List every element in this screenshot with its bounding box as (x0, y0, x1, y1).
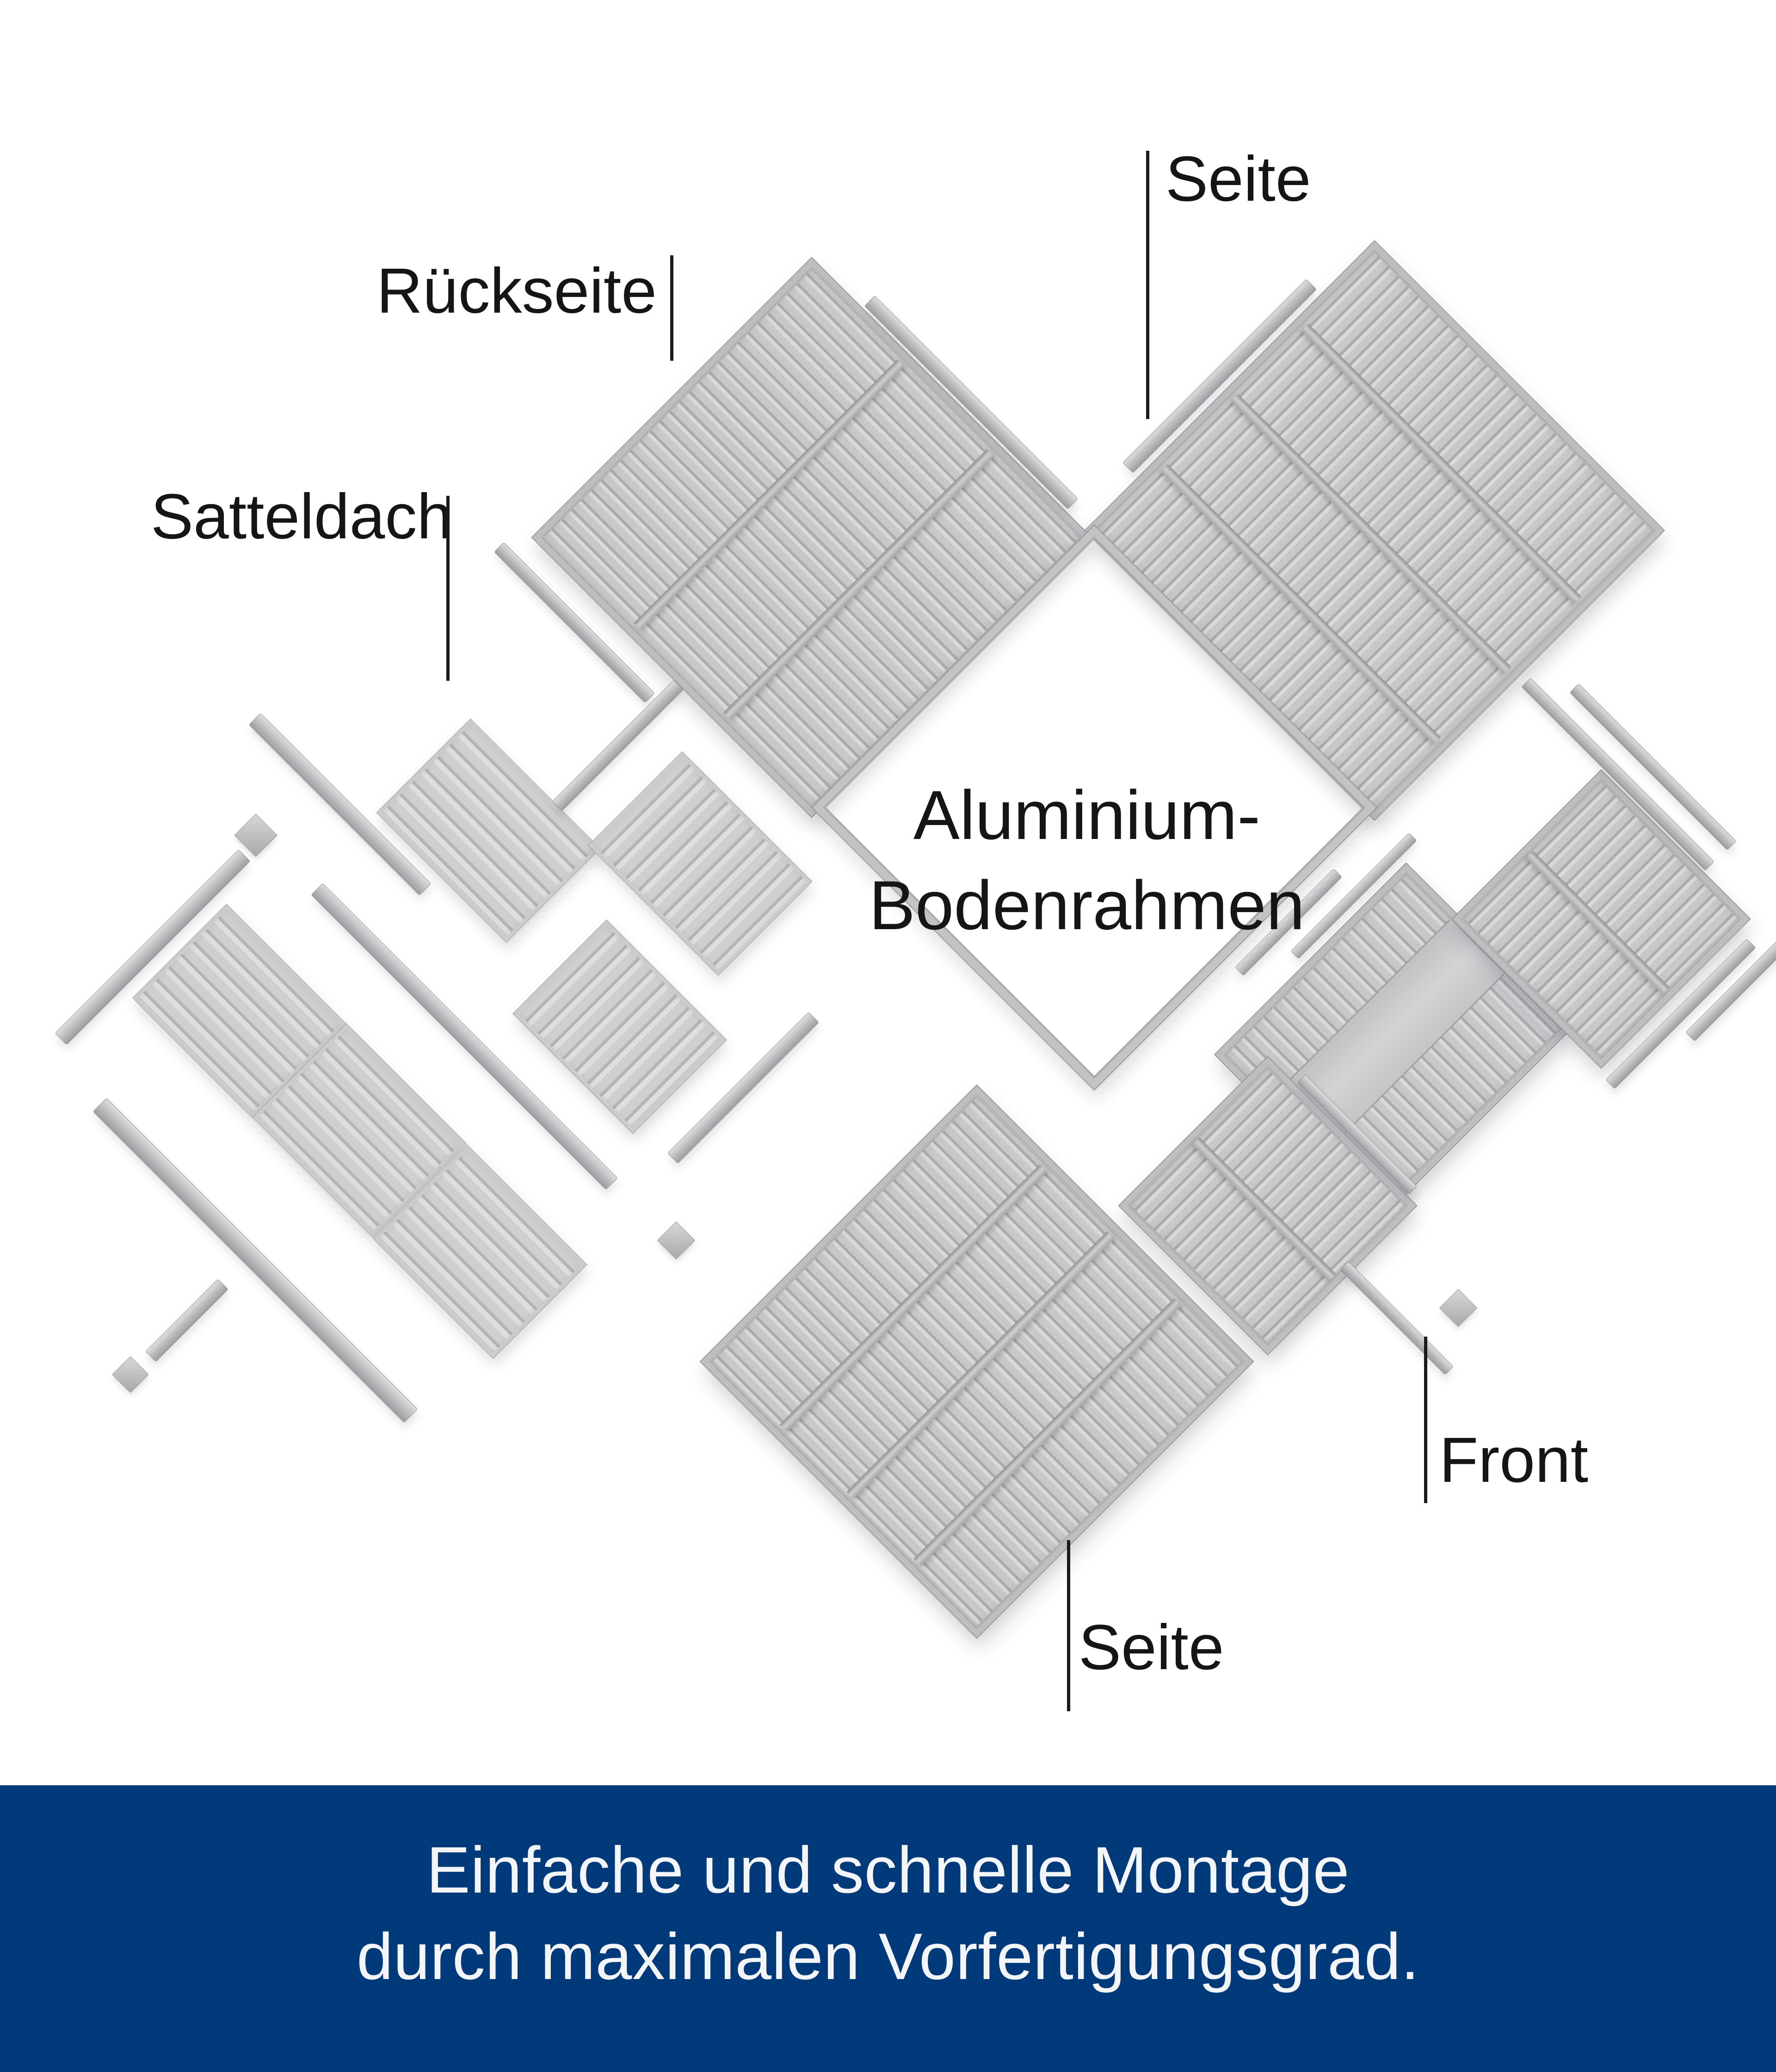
label-rueckseite: Rückseite (351, 259, 657, 323)
label-seite-bottom: Seite (1079, 1616, 1224, 1679)
label-bodenrahmen-line2: Bodenrahmen (786, 860, 1387, 950)
corner-cap-1 (235, 814, 277, 857)
callout-line-seite-bottom (1067, 1540, 1070, 1711)
support-bar (1301, 324, 1581, 604)
support-bar (914, 1299, 1181, 1566)
corner-cap-4 (1440, 1289, 1476, 1326)
product-diagram: Rückseite Seite Satteldach Aluminium- Bo… (0, 0, 1776, 2072)
diagram-stage (0, 0, 1776, 2072)
support-bar (634, 360, 905, 630)
support-bar (1231, 394, 1511, 674)
support-bar (780, 1165, 1047, 1432)
callout-line-satteldach (446, 496, 450, 681)
front-bottom-strip (1340, 1262, 1453, 1374)
label-bodenrahmen: Aluminium- Bodenrahmen (786, 770, 1387, 950)
roof-panel-6 (513, 920, 726, 1133)
callout-line-seite-top (1146, 151, 1149, 419)
support-bar (1192, 1138, 1336, 1282)
label-seite-top: Seite (1165, 147, 1311, 211)
support-bar (1526, 851, 1670, 995)
callout-line-front (1424, 1337, 1427, 1503)
callout-line-rueckseite (670, 255, 673, 361)
corner-cap-2 (113, 1357, 148, 1392)
corner-cap-3 (658, 1222, 694, 1258)
roof-panel-1 (377, 719, 600, 942)
label-front: Front (1439, 1428, 1588, 1492)
banner: Einfache und schnelle Montage durch maxi… (0, 1785, 1776, 2072)
label-satteldach: Satteldach (151, 485, 452, 549)
label-bodenrahmen-line1: Aluminium- (786, 770, 1387, 860)
roof-strip-small (146, 1280, 228, 1362)
banner-line-1: Einfache und schnelle Montage (426, 1827, 1350, 1913)
support-bar (847, 1232, 1114, 1499)
banner-line-2: durch maximalen Vorfertigungsgrad. (357, 1913, 1419, 2000)
